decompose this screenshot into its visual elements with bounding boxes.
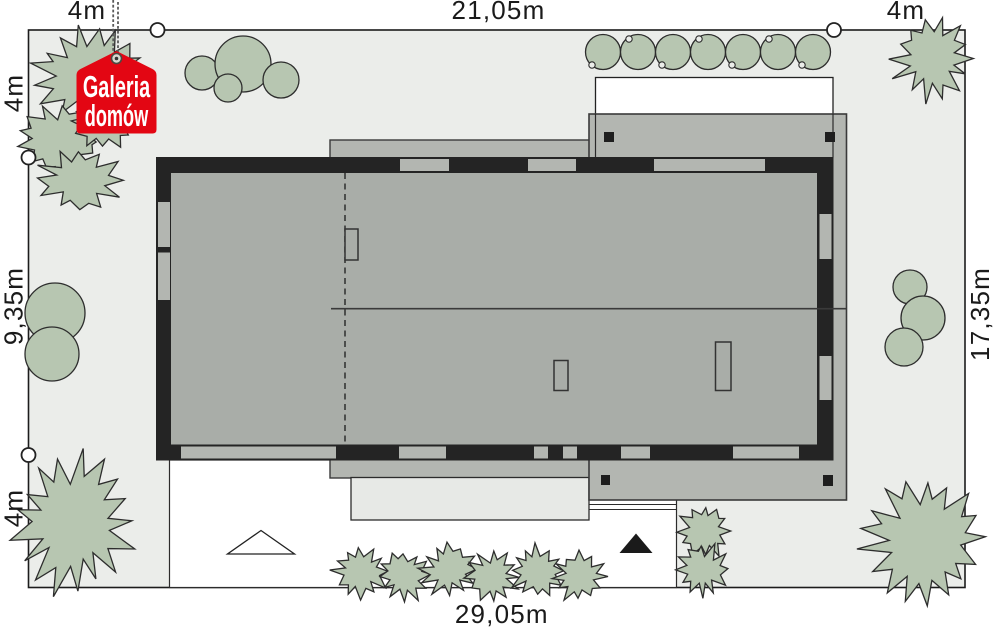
svg-text:17,35m: 17,35m [965,267,995,361]
svg-text:4m: 4m [0,74,29,113]
svg-text:4m: 4m [0,489,29,528]
svg-text:4m: 4m [887,0,926,25]
svg-text:29,05m: 29,05m [455,599,549,627]
svg-text:4m: 4m [68,0,107,25]
svg-text:9,35m: 9,35m [0,267,29,345]
svg-text:21,05m: 21,05m [452,0,546,25]
svg-text:domów: domów [85,99,149,133]
